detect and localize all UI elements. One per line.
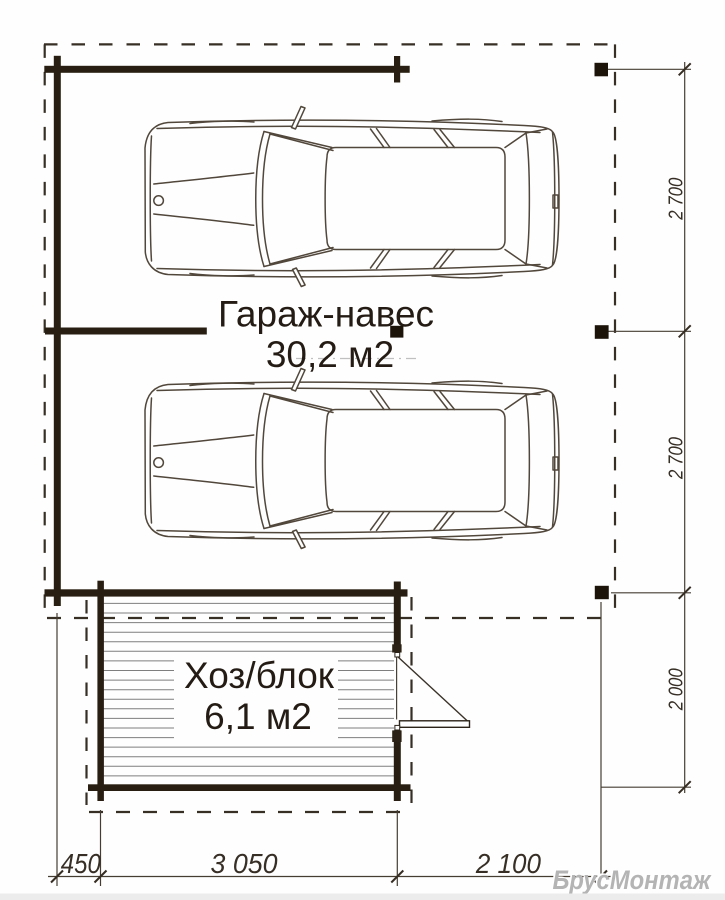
svg-text:2 100: 2 100 <box>475 848 541 879</box>
svg-text:БрусМонтаж: БрусМонтаж <box>553 865 713 895</box>
svg-text:2 700: 2 700 <box>665 177 688 220</box>
svg-text:2 700: 2 700 <box>665 437 688 480</box>
svg-text:6,1 м2: 6,1 м2 <box>204 696 312 737</box>
svg-text:30,2 м2: 30,2 м2 <box>266 334 394 375</box>
svg-text:2 000: 2 000 <box>665 668 688 711</box>
svg-text:Хоз/блок: Хоз/блок <box>184 655 335 696</box>
svg-text:450: 450 <box>61 848 101 879</box>
svg-text:3 050: 3 050 <box>211 848 278 879</box>
